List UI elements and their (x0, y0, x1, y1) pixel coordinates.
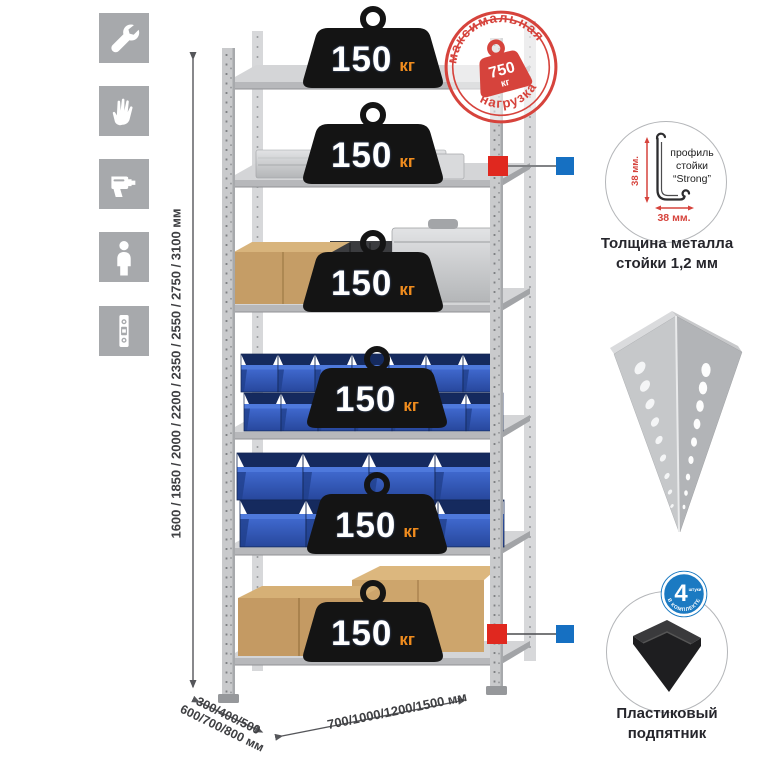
height-dimension-label: 1600 / 1850 / 2000 / 2200 / 2350 / 2550 … (169, 49, 184, 699)
load-value: 150 (331, 264, 392, 304)
load-unit: кг (403, 522, 419, 542)
kit-count-small-word: штуки (689, 587, 702, 592)
profile-label-line2: стойки (676, 160, 708, 172)
shelf1-load-badge: 150кг (298, 4, 448, 90)
profile-connector (488, 156, 574, 176)
kit-count-number: 4 (674, 580, 688, 607)
load-unit: кг (399, 152, 415, 172)
profile-caption-line1: Толщина металла (587, 234, 747, 254)
max-load-stamp: максимальная нагрузка 750 кг (440, 6, 562, 128)
kit-count-badge: 4 штуки В КОМПЛЕКТЕ (660, 570, 708, 618)
connector-red-square (487, 624, 507, 644)
shelf6-load-badge: 150кг (298, 578, 448, 664)
load-value: 150 (331, 614, 392, 654)
profile-dim-horizontal: 38 мм. (657, 212, 690, 224)
profile-label-line1: профиль (670, 147, 714, 159)
profile-label-line3: “Strong” (673, 173, 711, 185)
profile-detail-circle: 38 мм. 38 мм. профиль стойки “Strong” (605, 121, 727, 243)
profile-caption: Толщина металла стойки 1,2 мм (587, 234, 747, 273)
connector-blue-square (556, 157, 574, 175)
product-infographic: 1600 / 1850 / 2000 / 2200 / 2350 / 2550 … (0, 0, 765, 765)
load-unit: кг (399, 56, 415, 76)
shelf4-load-badge: 150кг (302, 344, 452, 430)
foot-connector (487, 624, 574, 644)
profile-cross-section-drawing: 38 мм. 38 мм. профиль стойки “Strong” (606, 122, 725, 241)
connector-red-square (488, 156, 508, 176)
shelf5-load-badge: 150кг (302, 470, 452, 556)
shelf3-load-badge: 150кг (298, 228, 448, 314)
profile-dim-vertical: 38 мм. (630, 156, 641, 186)
load-unit: кг (399, 630, 415, 650)
load-value: 150 (331, 40, 392, 80)
load-unit: кг (399, 280, 415, 300)
load-value: 150 (335, 506, 396, 546)
metal-post-image (600, 306, 756, 546)
profile-caption-line2: стойки 1,2 мм (587, 254, 747, 274)
shelf2-load-badge: 150кг (298, 100, 448, 186)
load-unit: кг (403, 396, 419, 416)
load-value: 150 (331, 136, 392, 176)
foot-caption: Пластиковый подпятник (587, 704, 747, 743)
connector-blue-square (556, 625, 574, 643)
foot-caption-line1: Пластиковый (587, 704, 747, 724)
load-value: 150 (335, 380, 396, 420)
foot-caption-line2: подпятник (587, 724, 747, 744)
